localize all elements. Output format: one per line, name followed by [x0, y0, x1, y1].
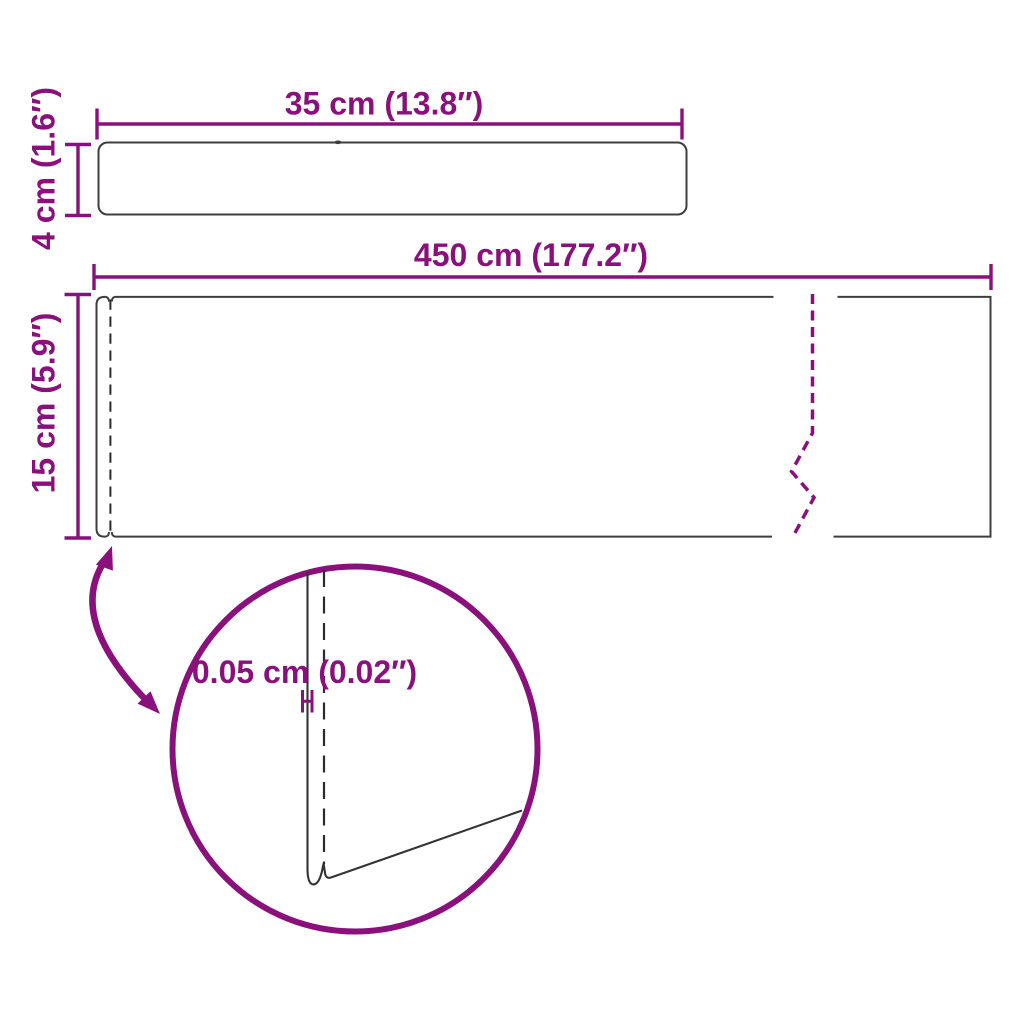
- svg-text:450 cm (177.2″): 450 cm (177.2″): [414, 237, 648, 273]
- svg-text:15 cm (5.9″): 15 cm (5.9″): [26, 313, 62, 494]
- svg-text:0.05 cm (0.02″): 0.05 cm (0.02″): [192, 654, 417, 690]
- svg-text:4 cm (1.6″): 4 cm (1.6″): [26, 87, 62, 250]
- svg-text:35 cm (13.8″): 35 cm (13.8″): [285, 86, 484, 122]
